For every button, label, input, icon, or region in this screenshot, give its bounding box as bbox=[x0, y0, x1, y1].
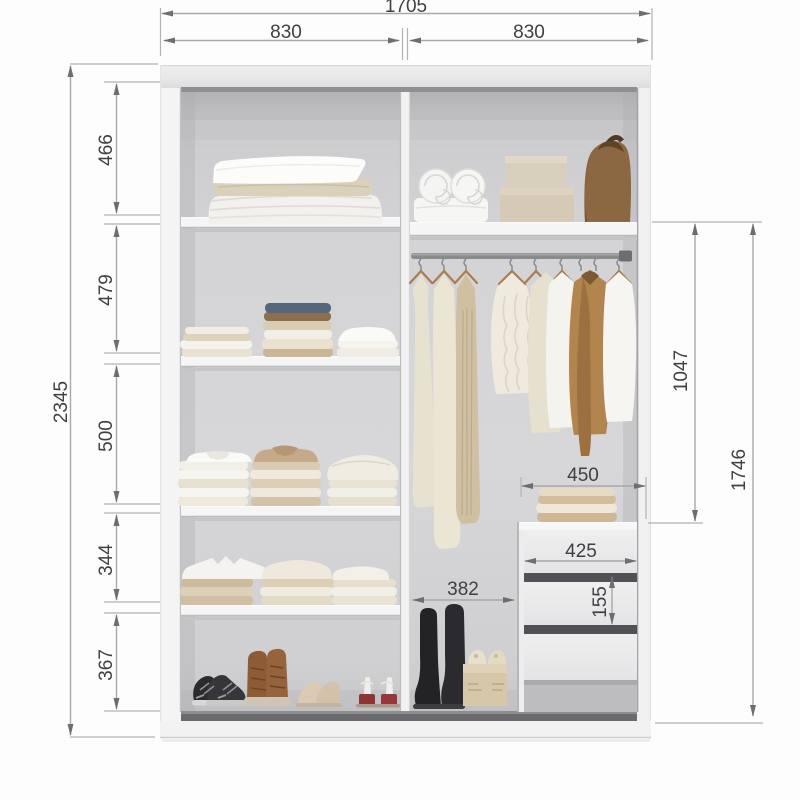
svg-text:450: 450 bbox=[567, 465, 599, 486]
svg-text:500: 500 bbox=[96, 420, 117, 452]
svg-text:382: 382 bbox=[447, 579, 479, 600]
svg-text:155: 155 bbox=[590, 586, 611, 618]
svg-text:2345: 2345 bbox=[51, 381, 72, 423]
svg-text:830: 830 bbox=[270, 22, 302, 43]
svg-text:344: 344 bbox=[96, 544, 117, 576]
svg-text:367: 367 bbox=[96, 649, 117, 681]
svg-text:425: 425 bbox=[565, 541, 597, 562]
svg-text:479: 479 bbox=[96, 274, 117, 306]
svg-text:830: 830 bbox=[513, 22, 545, 43]
svg-text:1746: 1746 bbox=[729, 449, 750, 491]
svg-text:1047: 1047 bbox=[671, 350, 692, 392]
svg-text:466: 466 bbox=[96, 134, 117, 166]
svg-text:1705: 1705 bbox=[385, 0, 427, 17]
